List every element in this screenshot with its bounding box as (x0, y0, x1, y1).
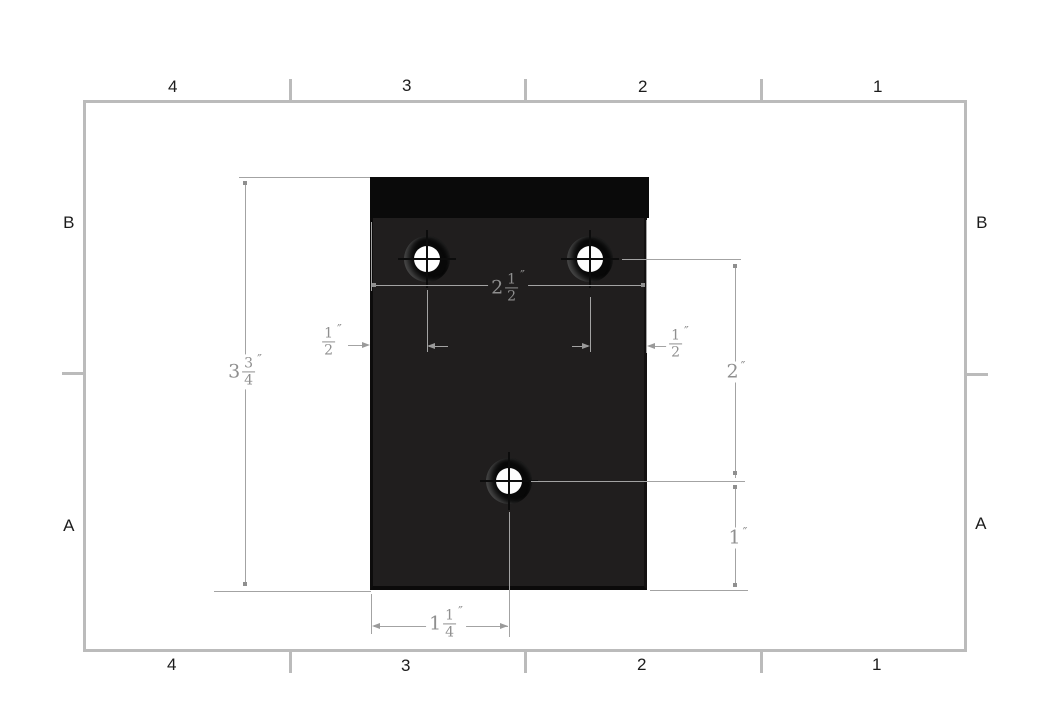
zone-label-top-4: 4 (168, 77, 178, 97)
zone-tick-left (62, 372, 83, 375)
hole-bottom-center (480, 452, 538, 510)
zone-tick-bottom-2 (524, 652, 527, 673)
zone-tick-top-1 (289, 79, 292, 100)
dim-whole: 2 (727, 363, 739, 382)
dim-spacing-end-bottom (733, 471, 737, 475)
hole-top-left (398, 230, 456, 288)
zone-tick-top-2 (524, 79, 527, 100)
drawing-sheet: 4 3 2 1 4 3 2 1 B A B A 3 3 4 ″ (0, 0, 1063, 709)
inch-mark: ″ (684, 325, 689, 338)
dim-right-offset-ext (590, 297, 591, 352)
zone-tick-right (967, 373, 988, 376)
centermark-vertical (589, 230, 591, 288)
dim-left-offset-text: 1 2 ″ (319, 324, 345, 359)
dim-width-text: 2 1 2 ″ (488, 270, 528, 305)
dim-bottom-offset-arrow-right (500, 623, 508, 629)
zone-label-bottom-2: 2 (637, 655, 647, 675)
plate-top-face (370, 177, 649, 218)
dim-bottom-offset-arrow-left (372, 623, 380, 629)
dim-bottom-offset-text: 1 1 4 ″ (426, 606, 466, 641)
zone-tick-top-3 (760, 79, 763, 100)
dim-bottom-height-text: 1 ″ (726, 528, 751, 549)
dim-spacing-end-top (733, 264, 737, 268)
dim-spacing-text: 2 ″ (724, 362, 749, 383)
dim-height-text: 3 3 4 ″ (225, 354, 265, 389)
zone-label-right-a: A (975, 514, 987, 534)
dim-bottom-height-ext (650, 590, 748, 591)
dim-bottom-height-end-bottom (733, 583, 737, 587)
dim-height-end-top (243, 181, 247, 185)
dim-fraction: 1 2 (669, 327, 682, 360)
zone-label-left-b: B (63, 213, 75, 233)
zone-label-bottom-1: 1 (872, 655, 882, 675)
dim-height-ext-bottom (214, 591, 371, 592)
inch-mark: ″ (743, 527, 748, 540)
zone-label-top-1: 1 (873, 77, 883, 97)
inch-mark: ″ (337, 323, 342, 336)
inch-mark: ″ (257, 353, 262, 366)
zone-label-top-2: 2 (638, 77, 648, 97)
dim-width-end-left (372, 283, 376, 287)
dim-fraction: 3 4 (242, 355, 255, 388)
dim-fraction: 1 2 (505, 271, 518, 304)
dim-left-offset-arrow-left (427, 343, 435, 349)
dim-right-offset-arrow-left (647, 343, 655, 349)
zone-label-top-3: 3 (402, 76, 412, 96)
zone-tick-bottom-1 (289, 652, 292, 673)
bottom-hole-centerline (509, 512, 510, 637)
dim-width-end-right (641, 283, 645, 287)
zone-label-left-a: A (63, 516, 75, 536)
centermark-vertical (426, 230, 428, 288)
dim-left-offset-arrow-right (362, 342, 370, 348)
dim-bottom-height-end-top (733, 485, 737, 489)
dim-whole: 1 (429, 615, 441, 634)
dim-right-offset-text: 1 2 ″ (666, 326, 692, 361)
zone-label-bottom-4: 4 (167, 655, 177, 675)
centermark-vertical (508, 452, 510, 510)
dim-left-offset-ext (427, 290, 428, 352)
dim-fraction: 1 4 (443, 607, 456, 640)
dim-whole: 1 (729, 529, 741, 548)
dim-height-end-bottom (243, 582, 247, 586)
dim-whole: 2 (491, 279, 503, 298)
zone-label-bottom-3: 3 (401, 656, 411, 676)
inch-mark: ″ (520, 269, 525, 282)
dim-right-offset-arrow-right (582, 343, 590, 349)
dim-whole: 3 (228, 363, 240, 382)
dim-spacing-leader-top (622, 259, 741, 260)
inch-mark: ″ (741, 361, 746, 374)
dim-bottom-offset-ext (371, 594, 372, 634)
dim-width-ext-left (371, 222, 372, 291)
inch-mark: ″ (458, 605, 463, 618)
dim-fraction: 1 2 (322, 325, 335, 358)
dim-height-ext-top (239, 177, 370, 178)
zone-label-right-b: B (976, 213, 988, 233)
zone-tick-bottom-3 (760, 652, 763, 673)
hole-top-right (561, 230, 619, 288)
dim-width-ext-right (646, 220, 647, 353)
dim-spacing-leader-bottom (531, 481, 745, 482)
